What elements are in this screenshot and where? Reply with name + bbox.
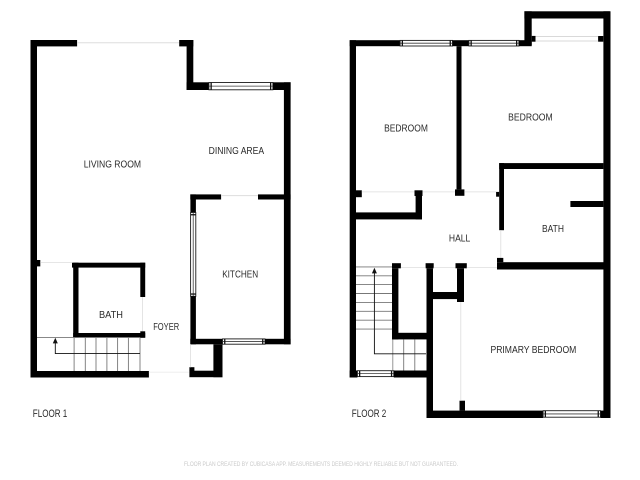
svg-text:PRIMARY BEDROOM: PRIMARY BEDROOM bbox=[490, 345, 576, 356]
svg-text:HALL: HALL bbox=[449, 233, 471, 244]
svg-text:BEDROOM: BEDROOM bbox=[508, 113, 553, 124]
svg-text:BATH: BATH bbox=[542, 224, 564, 235]
svg-text:BEDROOM: BEDROOM bbox=[384, 124, 428, 135]
svg-text:FLOOR 1: FLOOR 1 bbox=[33, 408, 68, 420]
svg-text:DINING AREA: DINING AREA bbox=[209, 146, 265, 157]
svg-text:KITCHEN: KITCHEN bbox=[222, 270, 258, 281]
svg-text:LIVING ROOM: LIVING ROOM bbox=[84, 159, 141, 170]
svg-text:FLOOR PLAN CREATED BY CUBICASA: FLOOR PLAN CREATED BY CUBICASA APP. MEAS… bbox=[184, 462, 458, 468]
svg-text:FLOOR 2: FLOOR 2 bbox=[352, 408, 387, 420]
svg-text:BATH: BATH bbox=[99, 310, 123, 321]
svg-text:FOYER: FOYER bbox=[153, 322, 179, 333]
